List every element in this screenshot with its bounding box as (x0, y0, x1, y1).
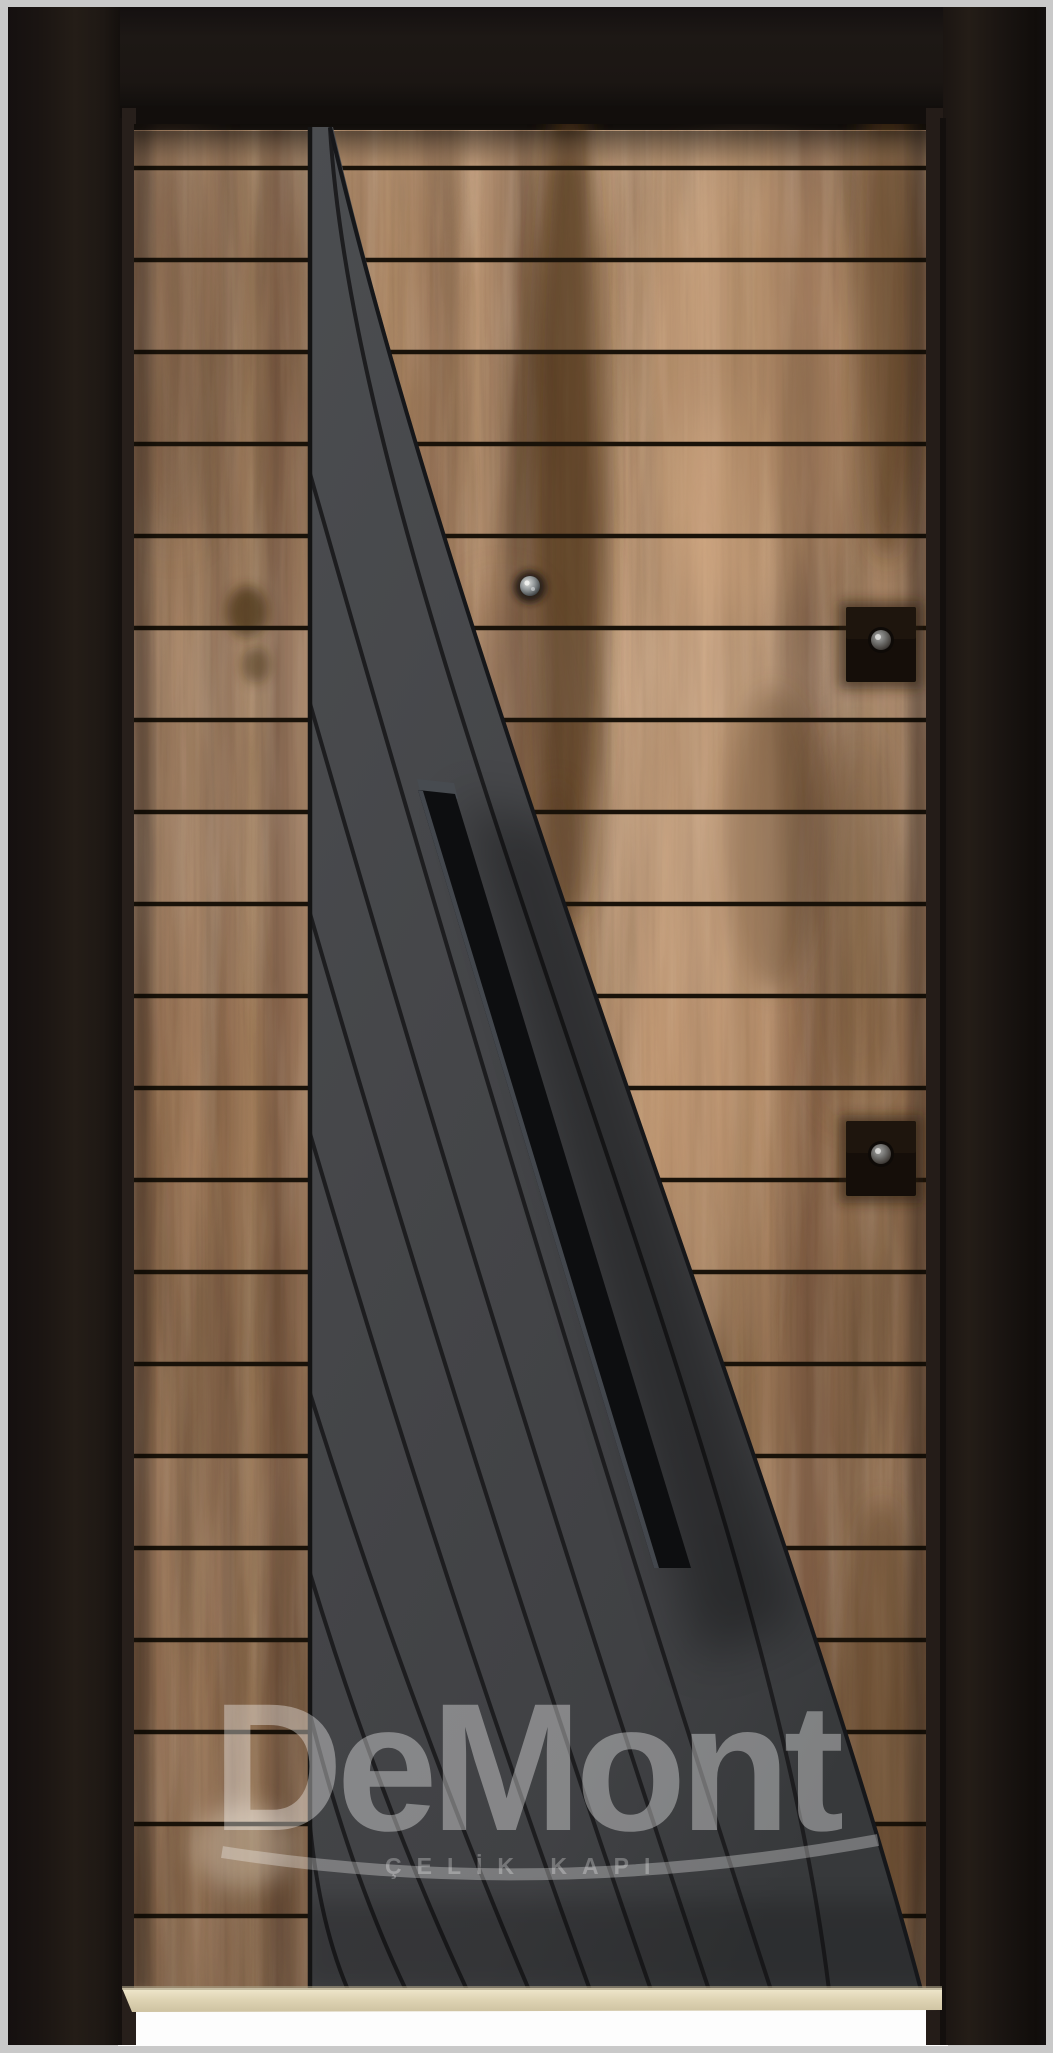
svg-text:DeMont: DeMont (212, 1665, 843, 1869)
